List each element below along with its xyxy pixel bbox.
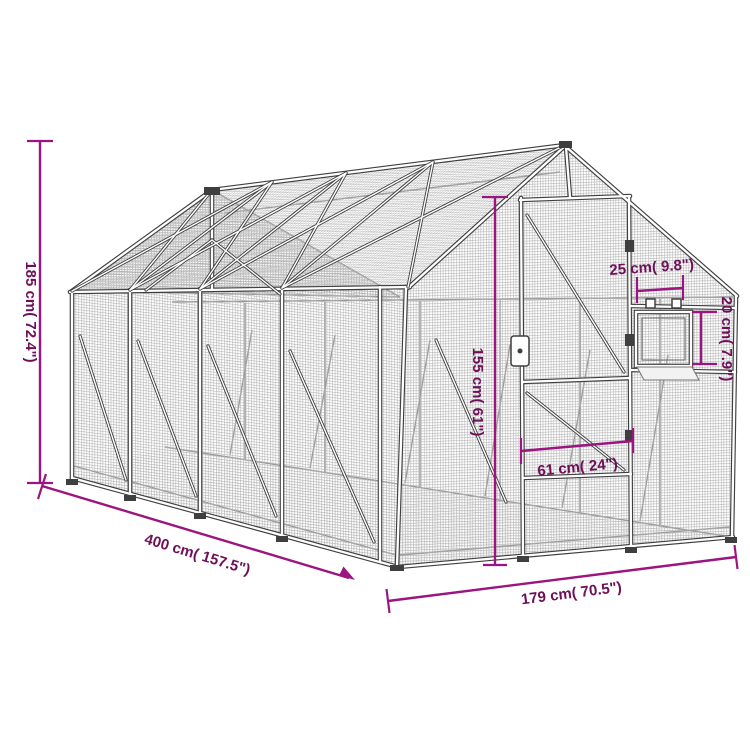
post-foot [517,556,529,562]
post-foot [725,537,737,543]
hatch-clip [646,299,655,308]
ridge-cap [559,141,572,148]
door-latch-knob [518,349,523,354]
dimension-height: 185 cm( 72.4") [22,141,53,483]
post-foot [66,479,78,485]
dimension-length-label: 400 cm( 157.5") [142,531,252,579]
dimension-door-height-label: 155 cm( 61") [469,348,486,437]
post-foot [194,513,206,519]
post-foot [276,536,288,542]
ridge-cap [204,187,220,195]
post-foot [124,495,136,501]
dimension-hatch-height-label: 20 cm( 7.9") [718,297,735,382]
diagram-canvas: 185 cm( 72.4") 400 cm( 157.5") 179 cm( 7… [0,0,750,750]
hatch-clip [672,299,681,308]
dimension-height-label: 185 cm( 72.4") [22,261,39,362]
post-foot [625,547,637,553]
aviary-dimension-diagram: 185 cm( 72.4") 400 cm( 157.5") 179 cm( 7… [0,0,750,750]
hatch-sill [637,367,699,380]
post-foot [390,565,404,571]
door-hinge [625,240,634,252]
door-hinge [625,334,634,346]
